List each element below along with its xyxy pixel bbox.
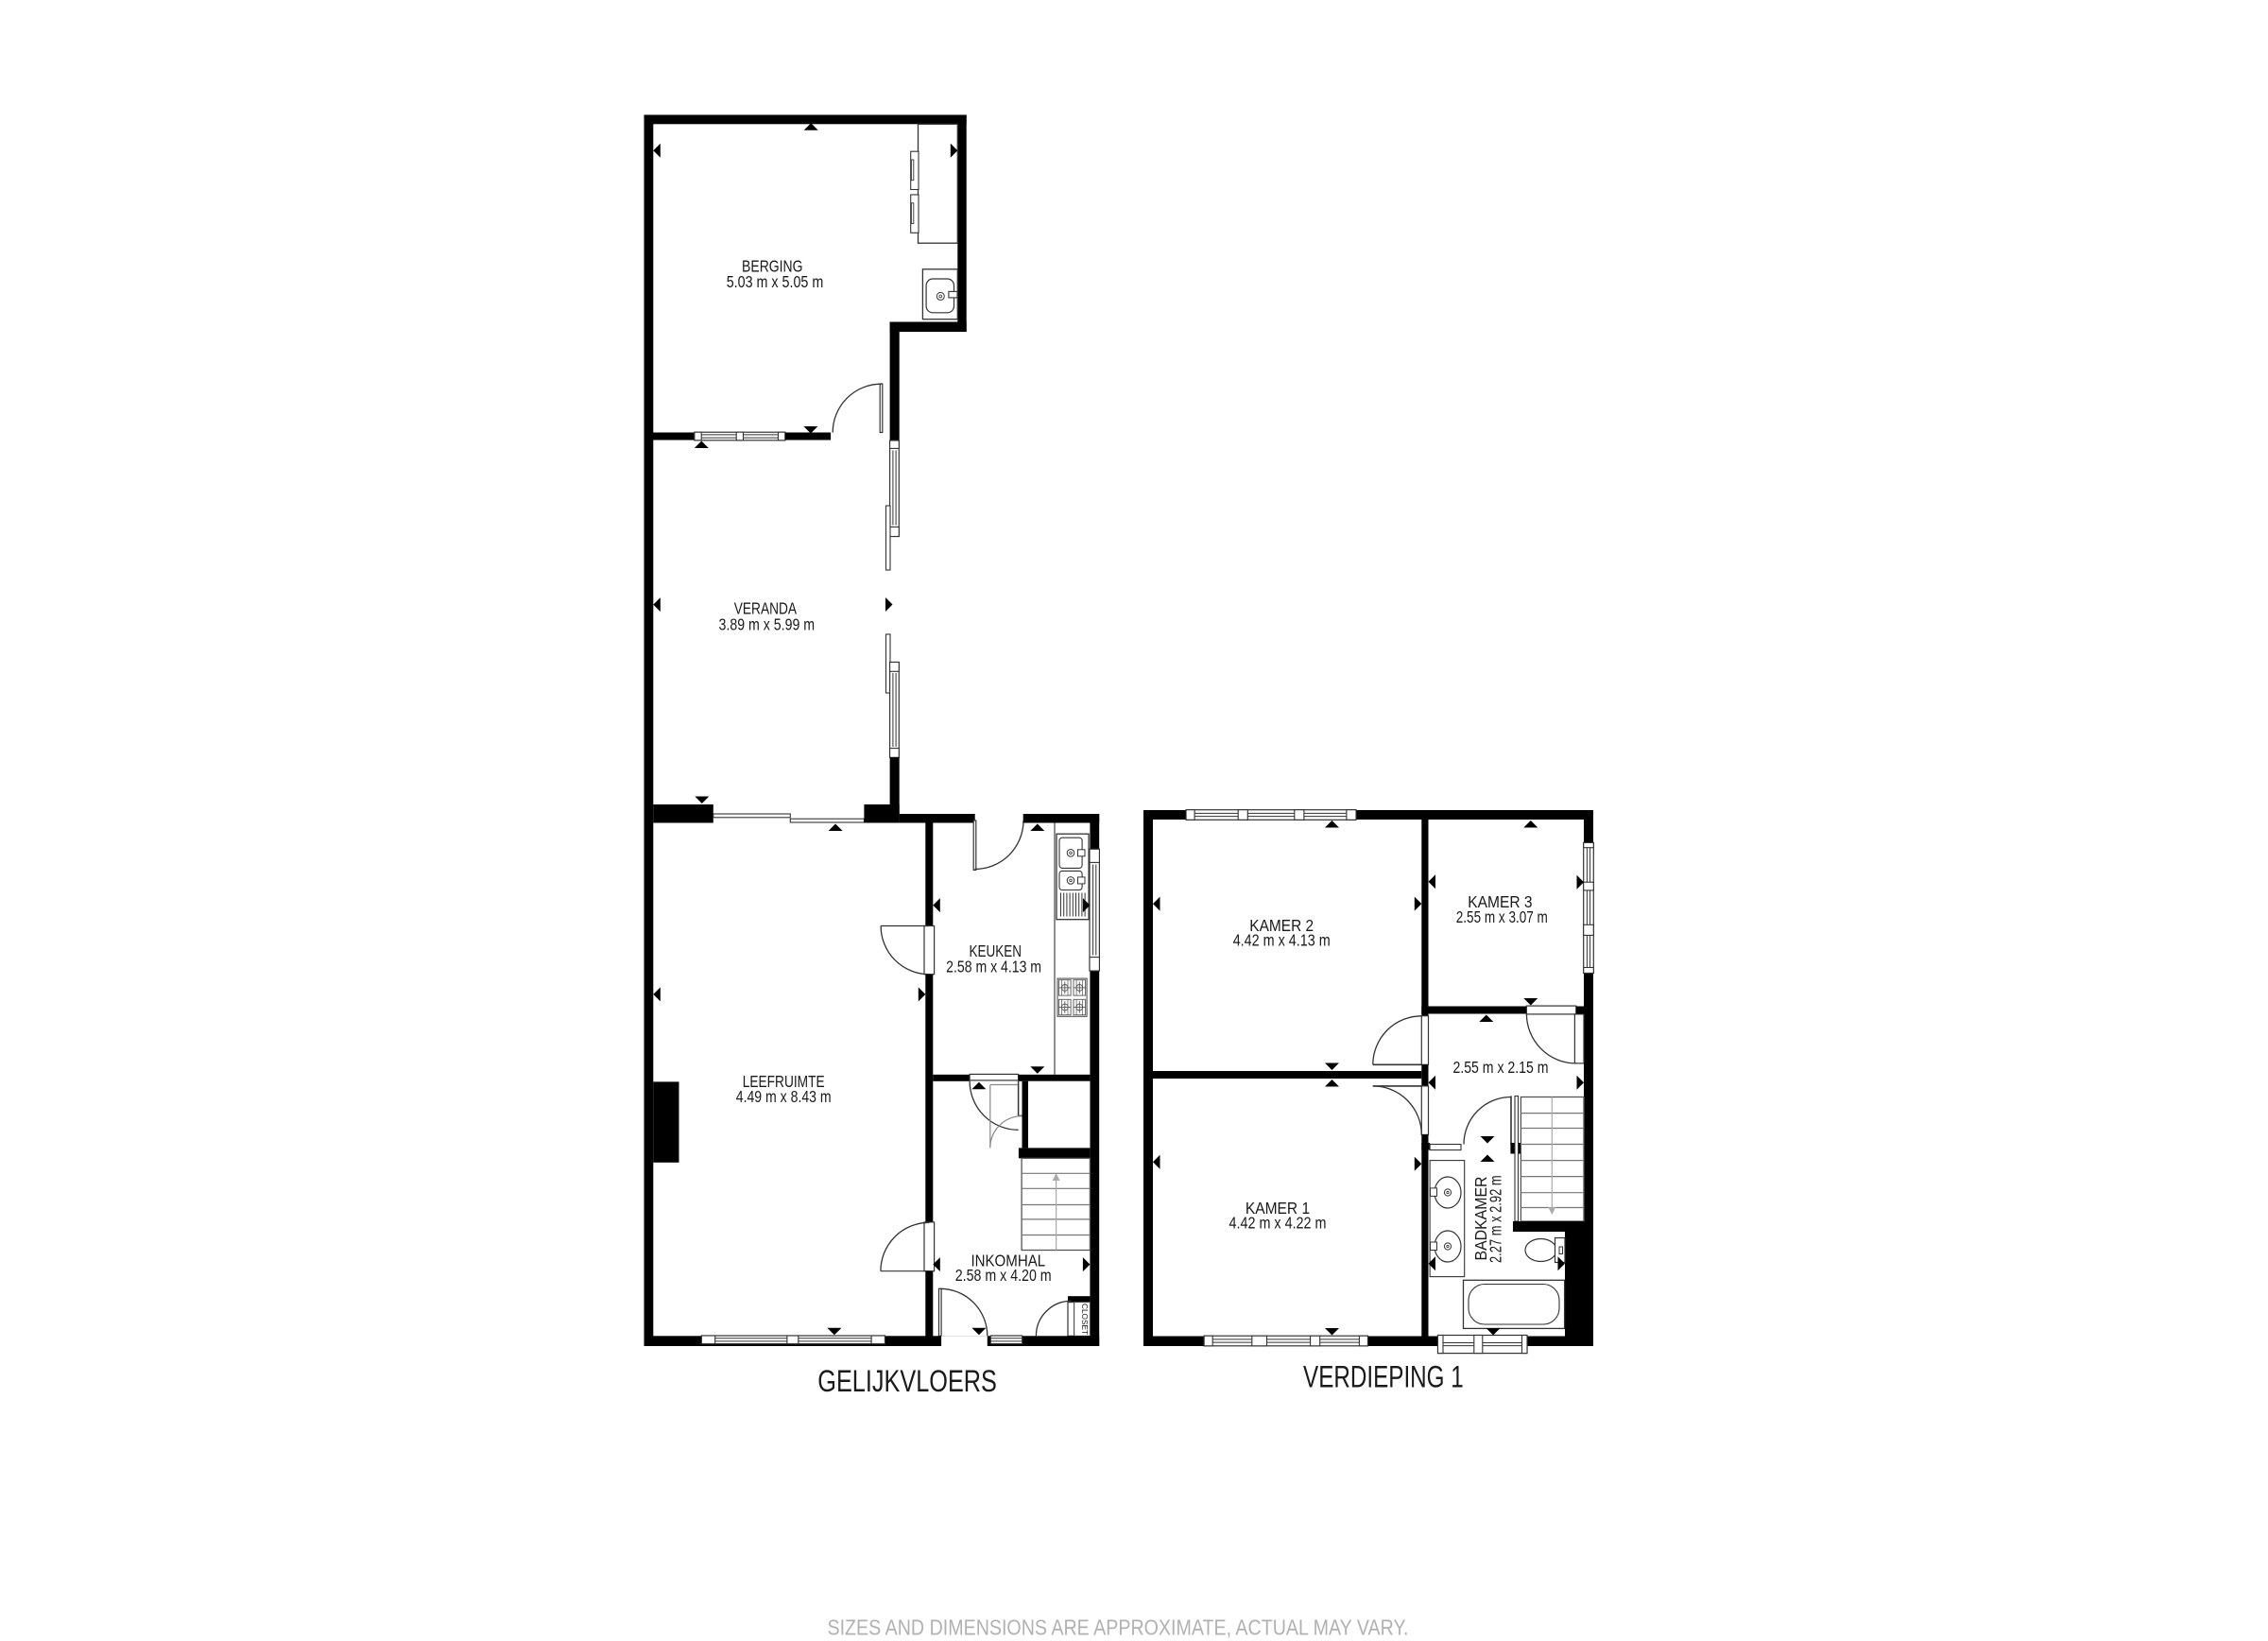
svg-text:2.58 m x 4.13 m: 2.58 m x 4.13 m: [946, 957, 1041, 976]
svg-text:2.55 m x 2.15 m: 2.55 m x 2.15 m: [1452, 1058, 1548, 1077]
svg-text:4.42 m x 4.13 m: 4.42 m x 4.13 m: [1233, 930, 1331, 949]
svg-text:CLOSET: CLOSET: [1080, 1304, 1089, 1335]
svg-text:5.03 m x 5.05 m: 5.03 m x 5.05 m: [727, 272, 824, 291]
svg-text:4.42 m x 4.22 m: 4.42 m x 4.22 m: [1229, 1214, 1327, 1233]
svg-text:2.27 m x 2.92 m: 2.27 m x 2.92 m: [1486, 1175, 1504, 1263]
svg-text:3.89 m x 5.99 m: 3.89 m x 5.99 m: [719, 615, 816, 634]
svg-text:2.55 m x 3.07 m: 2.55 m x 3.07 m: [1456, 907, 1548, 926]
svg-text:4.49 m x 8.43 m: 4.49 m x 8.43 m: [736, 1087, 832, 1106]
svg-text:2.58 m x 4.20 m: 2.58 m x 4.20 m: [955, 1266, 1052, 1285]
svg-text:GELIJKVLOERS: GELIJKVLOERS: [817, 1364, 997, 1398]
svg-text:SIZES AND DIMENSIONS ARE APPRO: SIZES AND DIMENSIONS ARE APPROXIMATE, AC…: [828, 1615, 1409, 1639]
svg-text:VERDIEPING 1: VERDIEPING 1: [1303, 1360, 1464, 1394]
